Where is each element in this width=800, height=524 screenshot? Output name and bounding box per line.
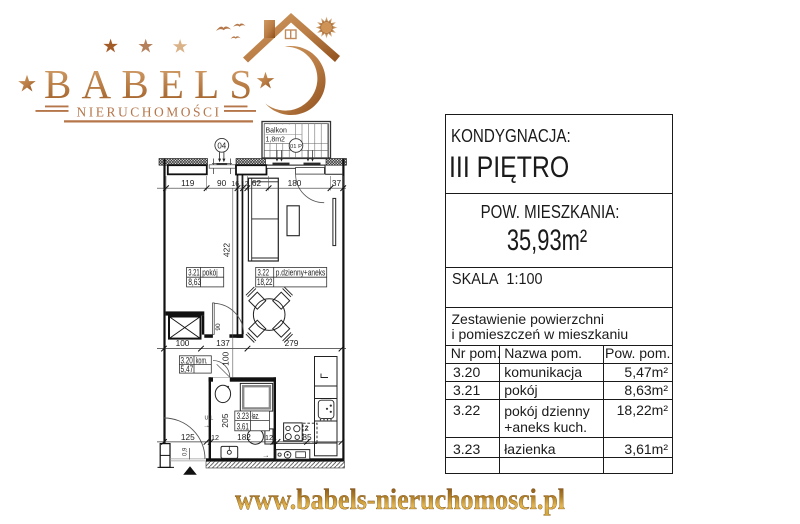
svg-text:Balkon: Balkon (266, 128, 288, 135)
svg-text:3,61: 3,61 (237, 421, 249, 431)
svg-text:BABELS: BABELS (44, 61, 262, 107)
svg-text:100: 100 (176, 338, 190, 348)
svg-text:12: 12 (211, 433, 219, 442)
svg-text:12: 12 (241, 181, 249, 188)
svg-text:3.22: 3.22 (258, 267, 270, 277)
svg-text:12: 12 (265, 433, 273, 442)
svg-text:5,47: 5,47 (181, 364, 194, 374)
svg-text:p.dzienny+aneks: p.dzienny+aneks (276, 267, 326, 277)
svg-text:90: 90 (217, 178, 227, 188)
svg-text:100: 100 (221, 351, 231, 365)
svg-text:3.21: 3.21 (188, 267, 200, 277)
svg-text:0,9: 0,9 (183, 447, 189, 456)
svg-text:90: 90 (215, 323, 222, 331)
svg-text:łaz.: łaz. (252, 411, 260, 421)
svg-text:2: 2 (305, 425, 309, 432)
svg-text:→: → (203, 423, 210, 430)
svg-text:3.23: 3.23 (237, 411, 249, 421)
svg-text:8,63: 8,63 (188, 277, 201, 287)
svg-text:180: 180 (288, 178, 302, 188)
svg-text:205: 205 (220, 413, 230, 427)
svg-text:37: 37 (332, 178, 342, 188)
svg-text:04: 04 (217, 141, 226, 150)
svg-text:279: 279 (285, 338, 299, 348)
svg-text:U-L: U-L (205, 416, 214, 422)
svg-text:422: 422 (221, 243, 231, 257)
svg-text:125: 125 (181, 432, 195, 442)
svg-text:01 P: 01 P (290, 144, 302, 150)
svg-text:1,8m2: 1,8m2 (266, 137, 286, 144)
svg-text:→: → (262, 451, 270, 460)
svg-text:119: 119 (181, 178, 195, 188)
svg-text:www.babels-nieruchomosci.pl: www.babels-nieruchomosci.pl (235, 483, 565, 516)
svg-text:kom.: kom. (196, 355, 208, 365)
svg-text:18,22: 18,22 (257, 277, 273, 287)
svg-text:182: 182 (237, 432, 251, 442)
svg-text:pokój: pokój (202, 267, 218, 277)
svg-text:85: 85 (302, 432, 312, 442)
svg-text:137: 137 (216, 338, 230, 348)
svg-text:62: 62 (252, 178, 262, 188)
svg-text:16: 16 (231, 181, 239, 188)
